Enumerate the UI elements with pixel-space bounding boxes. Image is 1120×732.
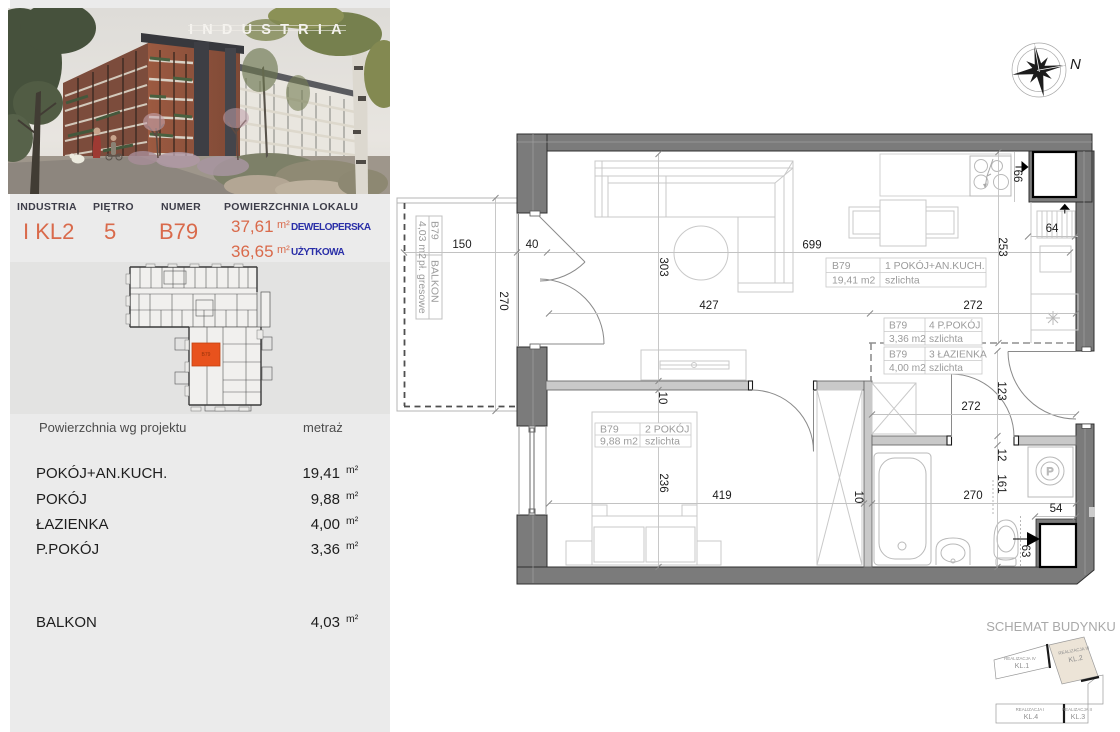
svg-text:699: 699 — [802, 240, 821, 252]
svg-text:10: 10 — [656, 392, 668, 405]
svg-text:123: 123 — [995, 381, 1007, 400]
svg-text:BALKON: BALKON — [429, 260, 441, 303]
svg-text:B79: B79 — [429, 221, 441, 240]
svg-text:54: 54 — [1050, 503, 1063, 515]
svg-text:12: 12 — [995, 449, 1007, 462]
svg-text:270: 270 — [497, 291, 509, 310]
svg-text:B79: B79 — [832, 261, 851, 272]
svg-text:1 POKÓJ+AN.KUCH.: 1 POKÓJ+AN.KUCH. — [885, 259, 985, 272]
svg-text:B79: B79 — [889, 350, 907, 361]
svg-text:4,03 m2: 4,03 m2 — [416, 221, 428, 259]
svg-text:KL.1: KL.1 — [1015, 663, 1030, 670]
svg-text:63: 63 — [1019, 545, 1031, 558]
svg-text:B79: B79 — [600, 424, 619, 436]
svg-text:SCHEMAT BUDYNKU: SCHEMAT BUDYNKU — [986, 619, 1116, 634]
svg-text:64: 64 — [1046, 223, 1059, 235]
svg-text:szlichta: szlichta — [929, 363, 963, 374]
svg-text:4 P.POKÓJ: 4 P.POKÓJ — [929, 319, 980, 332]
svg-text:szlichta: szlichta — [885, 276, 920, 287]
svg-text:272: 272 — [963, 300, 982, 312]
svg-text:19,41 m2: 19,41 m2 — [832, 276, 876, 287]
svg-text:REALIZACJA IV: REALIZACJA IV — [1004, 656, 1036, 661]
svg-text:KL.4: KL.4 — [1024, 714, 1039, 721]
svg-text:270: 270 — [963, 490, 982, 502]
svg-text:272: 272 — [961, 401, 980, 413]
svg-text:303: 303 — [657, 257, 669, 276]
svg-text:INDUSTRIA: INDUSTRIA — [189, 22, 351, 38]
svg-text:szlichta: szlichta — [645, 436, 680, 448]
svg-text:10: 10 — [852, 491, 864, 504]
svg-text:236: 236 — [657, 473, 669, 492]
svg-text:N: N — [1070, 56, 1081, 73]
svg-text:B79: B79 — [202, 352, 211, 358]
svg-text:P: P — [1046, 466, 1053, 478]
svg-text:pł. gresowe: pł. gresowe — [416, 260, 428, 314]
svg-text:2 POKÓJ: 2 POKÓJ — [645, 423, 689, 436]
svg-text:66: 66 — [1011, 170, 1023, 183]
svg-text:B79: B79 — [889, 321, 907, 332]
svg-text:150: 150 — [452, 239, 471, 251]
svg-text:3,36 m2: 3,36 m2 — [889, 334, 926, 345]
svg-text:REALIZACJA II: REALIZACJA II — [1062, 707, 1092, 712]
svg-text:KL.3: KL.3 — [1071, 714, 1086, 721]
svg-text:427: 427 — [699, 300, 718, 312]
svg-text:161: 161 — [995, 474, 1007, 493]
svg-text:9,88 m2: 9,88 m2 — [600, 436, 638, 448]
svg-text:szlichta: szlichta — [929, 334, 963, 345]
svg-text:REALIZACJA I: REALIZACJA I — [1016, 707, 1045, 712]
svg-text:253: 253 — [996, 237, 1008, 256]
svg-text:4,00 m2: 4,00 m2 — [889, 363, 926, 374]
svg-text:40: 40 — [526, 239, 539, 251]
svg-text:3 ŁAZIENKA: 3 ŁAZIENKA — [929, 350, 987, 361]
svg-text:419: 419 — [712, 490, 731, 502]
